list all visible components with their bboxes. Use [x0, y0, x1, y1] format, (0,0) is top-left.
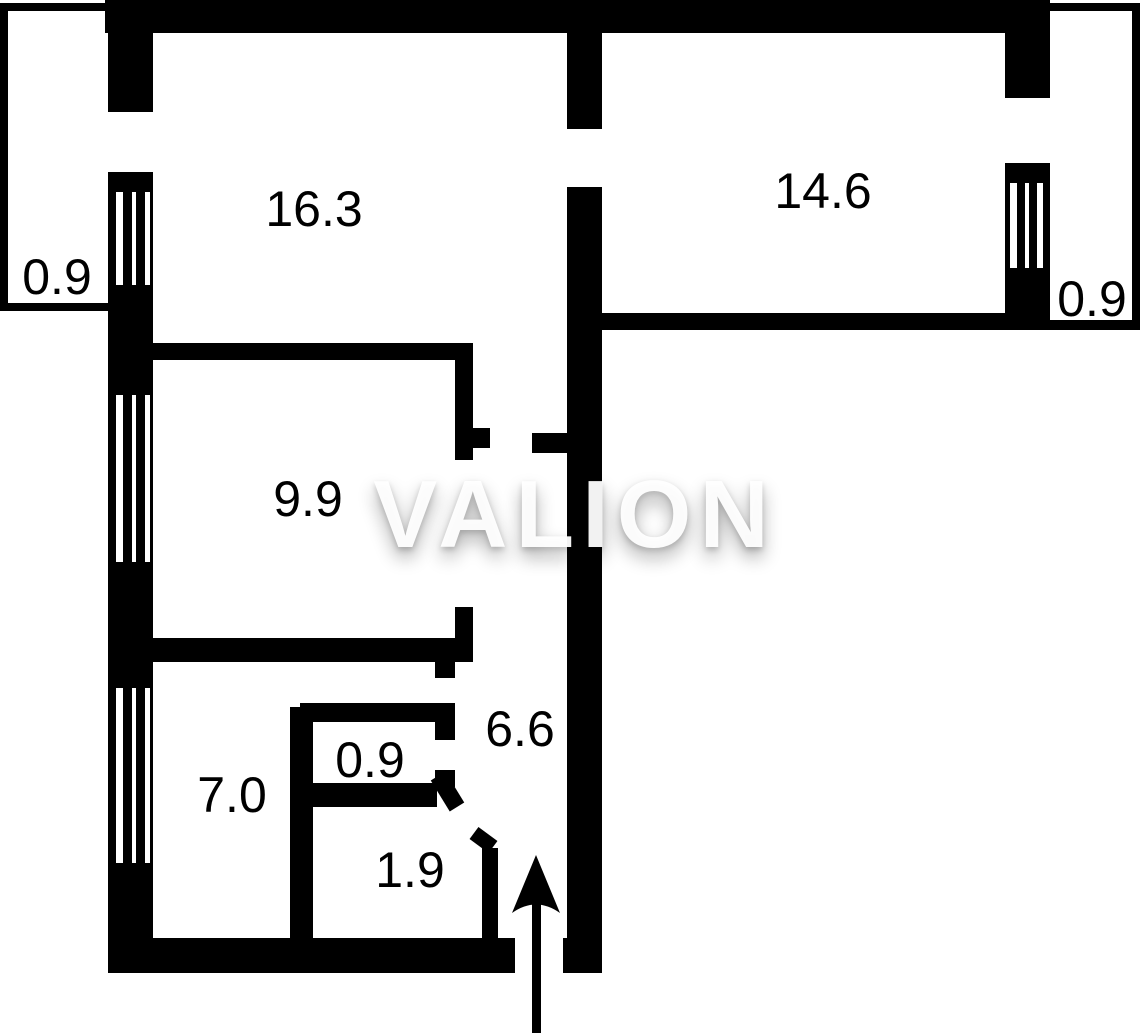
- label-wc-area: 0.9: [335, 735, 405, 785]
- window-bedroom-small-icon: [116, 395, 150, 562]
- window-pane-icon: [1029, 183, 1037, 268]
- window-living-room-icon: [116, 192, 150, 285]
- label-living-room-area: 16.3: [265, 184, 362, 234]
- label-hallway-area: 6.6: [485, 704, 555, 754]
- door-leaf-bathroom-icon: [474, 833, 493, 847]
- label-bedroom-right-area: 14.6: [774, 166, 871, 216]
- label-balcony-right-area: 0.9: [1057, 274, 1127, 324]
- window-pane-icon: [136, 688, 145, 863]
- window-pane-icon: [136, 192, 145, 285]
- window-bedroom-right-icon: [1010, 183, 1043, 268]
- entrance-arrow-shaft: [532, 893, 541, 1033]
- label-balcony-left-area: 0.9: [22, 252, 92, 302]
- label-bedroom-small-area: 9.9: [273, 474, 343, 524]
- floor-plan: 16.3 14.6 0.9 0.9 9.9 6.6 7.0 0.9 1.9 VA…: [0, 0, 1142, 1036]
- entrance-arrow-head-icon: [512, 855, 560, 913]
- label-kitchen-area: 7.0: [197, 770, 267, 820]
- door-leaf-wc-icon: [438, 776, 457, 807]
- window-kitchen-icon: [116, 688, 150, 863]
- label-bathroom-area: 1.9: [375, 845, 445, 895]
- window-pane-icon: [123, 192, 132, 285]
- window-pane-icon: [123, 688, 132, 863]
- window-pane-icon: [136, 395, 145, 562]
- window-pane-icon: [1017, 183, 1025, 268]
- valion-watermark: VALION: [373, 460, 777, 570]
- window-pane-icon: [123, 395, 132, 562]
